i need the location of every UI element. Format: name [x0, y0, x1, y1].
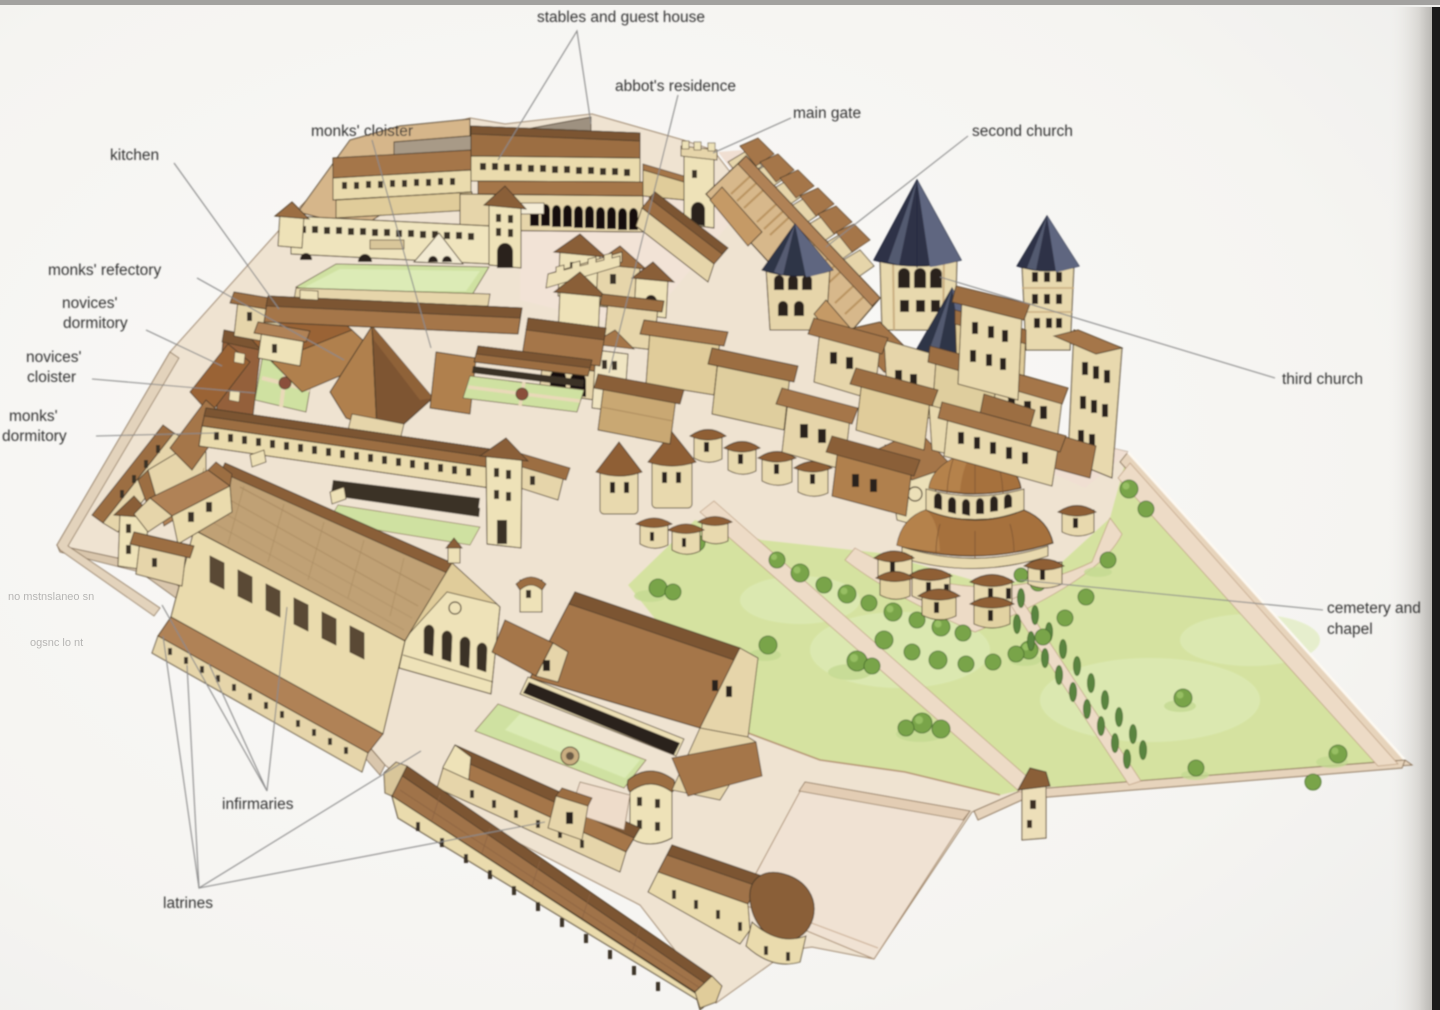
svg-text:infirmaries: infirmaries: [222, 796, 294, 813]
svg-text:monks' refectory: monks' refectory: [48, 262, 161, 279]
svg-text:main gate: main gate: [793, 105, 861, 122]
svg-text:cemetery and: cemetery and: [1327, 600, 1421, 617]
svg-text:novices': novices': [62, 295, 118, 312]
svg-text:kitchen: kitchen: [110, 147, 159, 164]
svg-text:novices': novices': [26, 349, 82, 366]
svg-text:abbot's residence: abbot's residence: [615, 78, 736, 95]
svg-text:ogsnc lo nt: ogsnc lo nt: [30, 637, 83, 649]
svg-text:cloister: cloister: [27, 369, 76, 386]
svg-text:monks' cloister: monks' cloister: [311, 123, 413, 140]
svg-text:latrines: latrines: [163, 895, 213, 912]
svg-text:dormitory: dormitory: [2, 428, 67, 445]
svg-text:monks': monks': [9, 408, 58, 425]
svg-text:chapel: chapel: [1327, 621, 1373, 638]
svg-text:no mstnslaneo sn: no mstnslaneo sn: [8, 591, 94, 603]
svg-text:third church: third church: [1282, 371, 1363, 388]
svg-text:second church: second church: [972, 123, 1073, 140]
svg-text:stables and guest house: stables and guest house: [537, 9, 705, 26]
svg-text:dormitory: dormitory: [63, 315, 128, 332]
